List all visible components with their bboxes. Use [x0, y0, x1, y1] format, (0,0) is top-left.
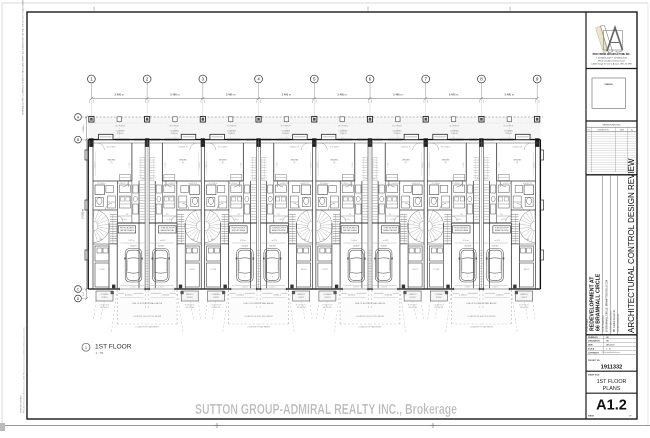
svg-text:W 1 PORCH: W 1 PORCH — [504, 126, 514, 128]
svg-text:A1.2: A1.2 — [596, 398, 627, 414]
svg-text:1ST FLOOR: 1ST FLOOR — [597, 379, 627, 385]
svg-text:GENERAL NOTES: CONTRACTOR MUS: GENERAL NOTES: CONTRACTOR MUST CHECK AND… — [22, 0, 25, 115]
svg-text:PORCH: PORCH — [505, 133, 512, 135]
svg-text:1911332: 1911332 — [601, 364, 622, 370]
svg-text:5.486 m: 5.486 m — [505, 92, 514, 96]
svg-text:1ST FLOOR: 1ST FLOOR — [95, 344, 132, 351]
svg-text:5.486 m: 5.486 m — [282, 92, 291, 96]
svg-text:W 1 PORCH: W 1 PORCH — [169, 126, 179, 128]
svg-text:Email: pva@provisionarch.net: Email: pva@provisionarch.net — [598, 59, 625, 62]
svg-text:W 1 PORCH: W 1 PORCH — [338, 126, 348, 128]
svg-text:PORCH: PORCH — [117, 133, 124, 135]
svg-text:PORCH: PORCH — [171, 133, 178, 135]
svg-text:W 1 PORCH: W 1 PORCH — [392, 126, 402, 128]
svg-text:W 1 PORCH: W 1 PORCH — [115, 126, 125, 128]
svg-text:DATE: DATE — [588, 344, 594, 347]
svg-text:5.486 m: 5.486 m — [170, 92, 179, 96]
svg-text:SHEET: SHEET — [588, 416, 595, 418]
svg-text:DRAWN BY: DRAWN BY — [588, 336, 599, 339]
svg-text:DRAWING NUMBER: DRAWING NUMBER — [20, 395, 23, 413]
svg-text:DESCRIPTION: DESCRIPTION — [598, 130, 610, 132]
svg-text:W 1 PORCH: W 1 PORCH — [281, 126, 291, 128]
svg-text:SUTTON GROUP-ADMIRAL REALTY IN: SUTTON GROUP-ADMIRAL REALTY INC., Broker… — [195, 402, 457, 418]
svg-text:5.486 m: 5.486 m — [115, 92, 124, 96]
svg-text:PROJECT ADDRESS: PROJECT ADDRESS — [602, 315, 605, 332]
svg-text:PORCH: PORCH — [228, 133, 235, 135]
svg-text:REVISION RECORD: REVISION RECORD — [603, 125, 621, 127]
svg-text:PORCH: PORCH — [451, 133, 458, 135]
svg-text:5.486 m: 5.486 m — [449, 92, 458, 96]
svg-text:T: (475)600-4547 F: (475)600: T: (475)600-4547 F: (475)600-4552 — [596, 57, 628, 59]
svg-text:W 1 PORCH: W 1 PORCH — [227, 126, 237, 128]
svg-text:SHEET TITLE: SHEET TITLE — [588, 374, 600, 376]
svg-text:SCALE: SCALE — [588, 348, 595, 351]
svg-text:PORCH: PORCH — [282, 133, 289, 135]
svg-text:66 BRAMHALL CIRCLE: 66 BRAMHALL CIRCLE — [595, 273, 601, 331]
svg-text:5.486 m: 5.486 m — [226, 92, 235, 96]
svg-text:5.486 m: 5.486 m — [337, 92, 346, 96]
svg-text:PORCH: PORCH — [340, 133, 347, 135]
svg-text:JAN 2020: JAN 2020 — [606, 344, 614, 347]
svg-text:By: By — [631, 130, 633, 132]
svg-text:PROJECT NO.: PROJECT NO. — [588, 360, 601, 362]
svg-text:14.935 m: 14.935 m — [82, 209, 85, 219]
svg-text:PROJECT: Pro Vision Architectu: PROJECT: Pro Vision Architecture Inc. 20… — [23, 327, 26, 413]
svg-text:DRAWING: DRAWING — [605, 83, 614, 86]
svg-text:1 : 75: 1 : 75 — [96, 351, 104, 355]
svg-text:BH Capital Group Ltd.: BH Capital Group Ltd. — [613, 309, 616, 332]
svg-text:2.438 m: 2.438 m — [83, 124, 85, 132]
svg-text:PLANS: PLANS — [603, 386, 621, 392]
svg-text:PORCH: PORCH — [394, 133, 401, 135]
svg-text:5.486 m: 5.486 m — [393, 92, 402, 96]
svg-text:PROJECT MILESTONE: PROJECT MILESTONE — [618, 313, 620, 332]
svg-text:66 BRAMHALL CIRCLE, BRAMPTON O: 66 BRAMHALL CIRCLE, BRAMPTON ON L6V 2S4 — [606, 279, 609, 332]
svg-text:W 1 PORCH: W 1 PORCH — [450, 126, 460, 128]
svg-text:PRO VISION ARCHITECTURE INC.: PRO VISION ARCHITECTURE INC. — [593, 53, 631, 56]
svg-text:ARCHITECTURAL CONTROL DESIGN R: ARCHITECTURAL CONTROL DESIGN REVIEW — [627, 158, 636, 333]
svg-text:14845 Yonge St. Unit 6, Aurora: 14845 Yonge St. Unit 6, Aurora, ON L4G 3… — [591, 62, 632, 65]
